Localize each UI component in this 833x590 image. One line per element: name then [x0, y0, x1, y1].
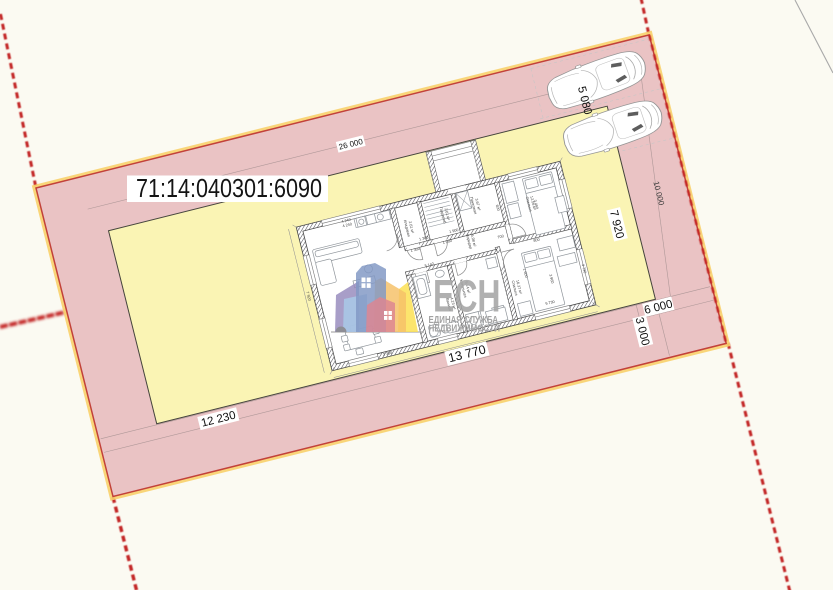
svg-text:НЕДВИЖИМОСТИ: НЕДВИЖИМОСТИ [429, 324, 501, 335]
svg-text:71:14:040301:6090: 71:14:040301:6090 [136, 175, 322, 203]
